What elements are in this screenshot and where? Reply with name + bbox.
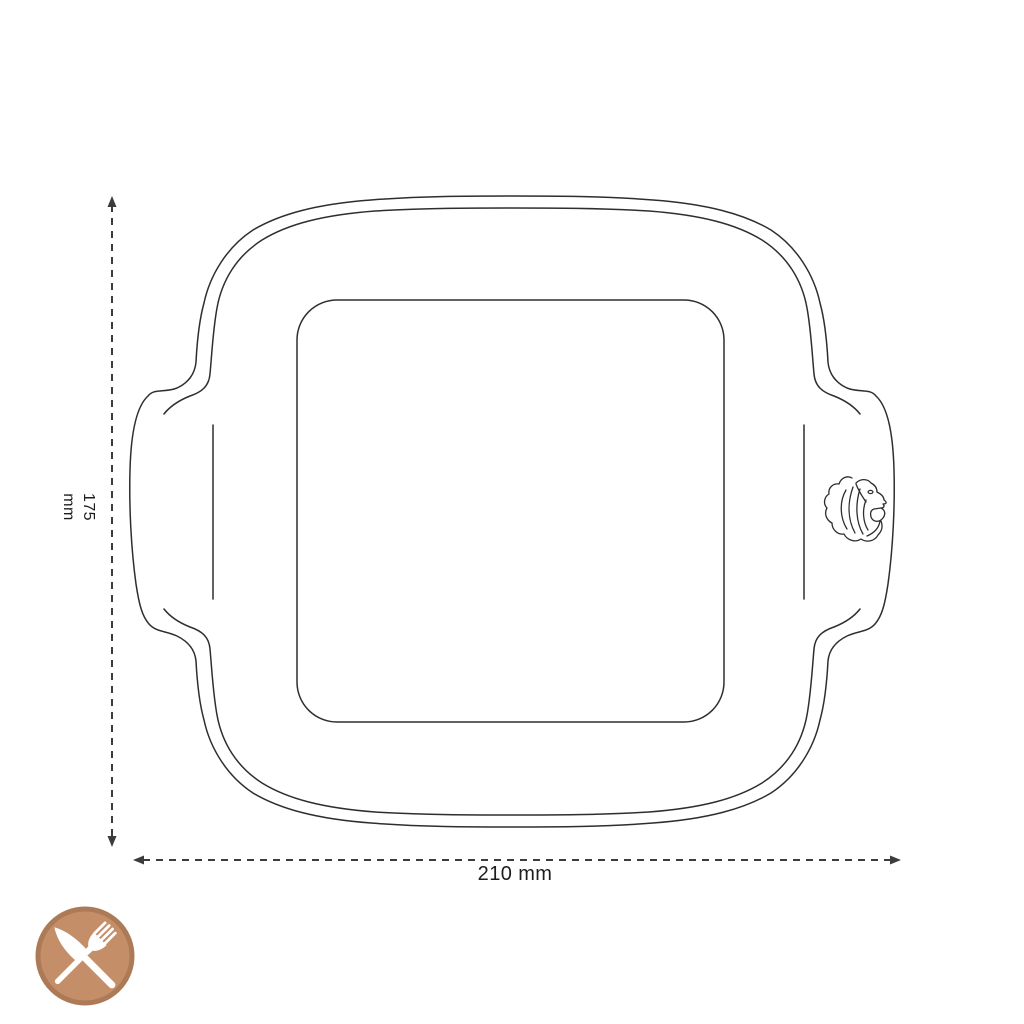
- lion-strand-4: [864, 500, 868, 530]
- arrow-down-icon: [108, 836, 117, 847]
- arrow-up-icon: [108, 196, 117, 207]
- lion-jaw: [867, 521, 880, 536]
- height-dimension-line: [108, 196, 117, 847]
- dish-inner-rim-bottom: [164, 609, 860, 815]
- height-dimension-label: 175 mm: [78, 477, 98, 537]
- dish-outline: [130, 196, 895, 827]
- arrow-left-icon: [133, 856, 144, 865]
- dish-cavity: [297, 300, 724, 722]
- lion-strand-1: [841, 490, 847, 529]
- product-dimension-diagram: 175 mm 210 mm: [0, 0, 1024, 1024]
- lion-eye: [868, 490, 873, 493]
- lion-strand-2: [849, 487, 855, 533]
- lion-mouth: [871, 508, 885, 521]
- dish-inner-rim-top: [164, 208, 860, 414]
- width-dimension-label: 210 mm: [465, 862, 565, 886]
- arrow-right-icon: [890, 856, 901, 865]
- lion-logo-icon: [825, 477, 887, 541]
- cutlery-badge: [38, 909, 132, 1003]
- dish-outer-rim: [130, 196, 895, 827]
